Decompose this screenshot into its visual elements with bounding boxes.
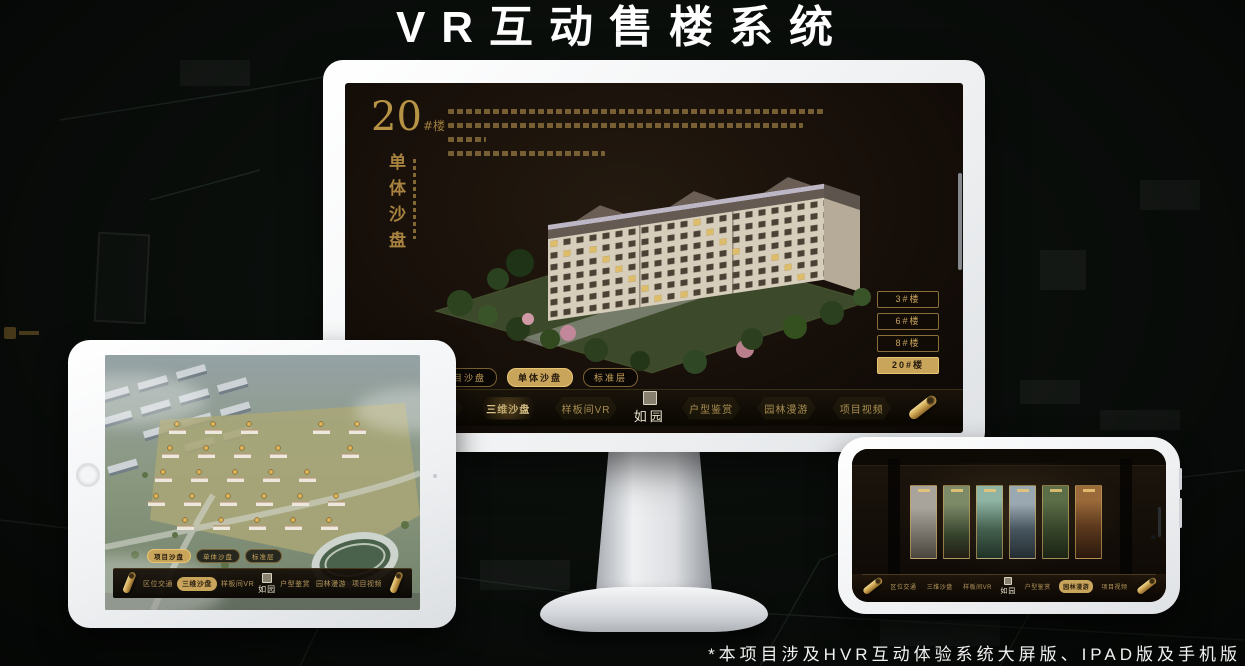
floor-button-8[interactable]: 8#楼 [877,335,939,352]
scene-card-carousel [910,485,1102,559]
phone-side-button [1179,498,1182,528]
nav-item-garden-roam[interactable]: 园林漫游 [1059,580,1093,593]
floor-button-6[interactable]: 6#楼 [877,313,939,330]
phone-side-button [1179,468,1182,490]
nav-item-location-traffic[interactable]: 区位交通 [141,576,175,592]
floor-button-20-active[interactable]: 20#楼 [877,357,939,374]
scroll-ornament-icon[interactable] [122,573,136,594]
brand-logo: 如园 [1000,577,1016,596]
scene-card[interactable] [943,485,970,559]
nav-item-floorplan[interactable]: 户型鉴赏 [681,396,741,421]
brand-seal-icon [643,391,657,405]
nav-item-showroom-vr[interactable]: 样板间VR [554,396,619,421]
tablet-camera-dot [433,474,437,478]
view-tab-group: 项目沙盘 单体沙盘 标准层 [431,368,638,387]
scroll-ornament-icon[interactable] [862,577,882,595]
tablet-screen: 项目沙盘 单体沙盘 标准层 区位交通 三维沙盘 样板间VR 如园 户型鉴赏 园林… [105,355,420,610]
building-3d-model-illustration[interactable] [400,143,905,378]
building-number-title: 20 [371,95,422,139]
nav-item-floorplan[interactable]: 户型鉴赏 [278,576,312,592]
scroll-ornament-icon[interactable] [907,395,937,421]
scene-card[interactable] [910,485,937,559]
nav-item-project-video[interactable]: 项目视频 [350,576,384,592]
nav-item-floorplan[interactable]: 户型鉴赏 [1023,580,1053,593]
monitor-stand-neck [596,448,712,592]
nav-item-garden-roam[interactable]: 园林漫游 [756,396,816,421]
building-number-suffix: #楼 [423,117,445,134]
scene-card[interactable] [1075,485,1102,559]
scroll-ornament-icon[interactable] [1136,577,1156,595]
floor-button-group: 3#楼 6#楼 8#楼 20#楼 [877,291,939,374]
tablet-tab-project-sandtable[interactable]: 项目沙盘 [147,549,191,563]
text-line [448,123,803,128]
nav-item-showroom-vr[interactable]: 样板间VR [961,580,994,593]
nav-item-3d-sandtable[interactable]: 三维沙盘 [478,396,538,421]
text-line [448,109,823,114]
nav-item-3d-sandtable[interactable]: 三维沙盘 [177,577,217,591]
interior-column-decor [1120,459,1132,589]
tablet-tab-standard-floor[interactable]: 标准层 [245,549,282,563]
tab-single-sandtable[interactable]: 单体沙盘 [507,368,573,387]
nav-item-3d-sandtable[interactable]: 三维沙盘 [925,580,955,593]
nav-item-project-video[interactable]: 项目视频 [832,396,892,421]
nav-item-location-traffic[interactable]: 区位交通 [888,580,918,593]
nav-item-showroom-vr[interactable]: 样板间VR [219,576,256,592]
brand-seal-icon [262,573,272,583]
tablet-nav-bar: 区位交通 三维沙盘 样板间VR 如园 户型鉴赏 园林漫游 项目视频 [113,568,412,598]
brand-name: 如园 [1000,586,1016,596]
phone-screen: 区位交通 三维沙盘 样板间VR 如园 户型鉴赏 园林漫游 项目视频 [852,449,1166,602]
brand-name: 如园 [634,406,666,425]
tablet-view-tab-group: 项目沙盘 单体沙盘 标准层 [147,549,282,563]
brand-logo: 如园 [258,573,276,595]
background-watermark [4,327,16,339]
phone-speaker-slot [1158,507,1161,537]
phone-front-camera [1151,535,1155,539]
brand-logo: 如园 [634,391,666,425]
nav-item-project-video[interactable]: 项目视频 [1100,580,1130,593]
poster-title: VR互动售楼系统 [0,0,1245,56]
brand-name: 如园 [258,584,276,595]
scene-card[interactable] [1042,485,1069,559]
phone-nav-bar: 区位交通 三维沙盘 样板间VR 如园 户型鉴赏 园林漫游 项目视频 [862,574,1156,597]
tablet-home-button [76,463,100,487]
tab-standard-floor[interactable]: 标准层 [583,368,638,387]
monitor-stand-base [540,587,768,632]
tablet-tab-single-sandtable[interactable]: 单体沙盘 [196,549,240,563]
scroll-ornament-icon[interactable] [389,573,403,594]
floor-button-3[interactable]: 3#楼 [877,291,939,308]
text-line [448,137,486,142]
background-sign-board [94,232,151,325]
screen-scrollbar[interactable] [958,173,962,270]
interior-column-decor [888,459,900,589]
nav-item-garden-roam[interactable]: 园林漫游 [314,576,348,592]
scene-card[interactable] [1009,485,1036,559]
brand-seal-icon [1004,577,1012,585]
scene-card[interactable] [976,485,1003,559]
poster-footnote: *本项目涉及HVR互动体验系统大屏版、IPAD版及手机版 [708,640,1241,665]
poster-canvas: VR互动售楼系统 20 #楼 单体沙盘 [0,0,1245,666]
